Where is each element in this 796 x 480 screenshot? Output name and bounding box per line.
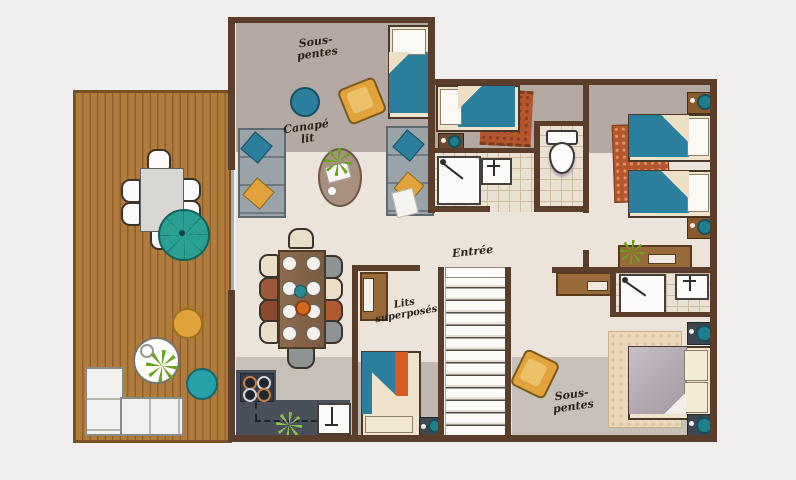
wall [534, 121, 583, 126]
basin-faucet [683, 280, 696, 282]
bowl-teal [294, 285, 307, 298]
lamp-icon [448, 135, 461, 148]
candle-icon [690, 223, 695, 228]
outdoor-chair [147, 149, 171, 170]
plate [306, 281, 321, 296]
basin-faucet [493, 160, 495, 176]
bed-pillow [684, 382, 708, 413]
candle-icon [441, 138, 446, 143]
sink-faucet [331, 407, 333, 425]
sink-faucet [325, 424, 338, 426]
bed-pillow [687, 174, 709, 212]
wall [505, 267, 511, 437]
wall [534, 121, 540, 212]
wall [228, 435, 717, 442]
wall [428, 17, 435, 213]
blanket-fold [458, 86, 482, 110]
wall [352, 265, 420, 271]
candle-icon [689, 329, 694, 334]
wall [710, 79, 717, 441]
outdoor-chair [181, 178, 201, 202]
wall [552, 267, 717, 273]
wall [610, 312, 712, 317]
burner-icon [243, 388, 257, 402]
candle-icon [421, 424, 426, 429]
outdoor-chair [121, 202, 141, 226]
lounge-sofa [120, 397, 184, 436]
wall [438, 267, 444, 437]
teal-pouf [186, 368, 218, 400]
washbasin [675, 274, 709, 300]
outdoor-chair [121, 179, 141, 203]
blanket-fold [389, 52, 411, 74]
dining-chair [288, 228, 314, 249]
dining-chair [259, 277, 279, 301]
wall [430, 79, 717, 85]
bed-pillow [684, 350, 708, 381]
wall [534, 206, 583, 212]
glass-door [231, 170, 234, 290]
wall [230, 17, 435, 23]
dining-chair [323, 277, 343, 301]
wall [352, 265, 358, 437]
plate [306, 256, 321, 271]
lounge-sofa [85, 367, 124, 436]
bunk-fold [372, 372, 416, 414]
staircase [445, 276, 506, 435]
teal-pouf [290, 87, 320, 117]
dining-chair [287, 347, 315, 369]
dining-chair [323, 255, 343, 279]
bunk-pillow [365, 416, 413, 433]
dining-chair [323, 320, 343, 344]
yellow-pouf [172, 308, 203, 339]
wall [228, 17, 235, 170]
dining-chair [259, 320, 279, 344]
stair-landing [445, 267, 506, 278]
blanket-fold [661, 115, 689, 143]
bed-pillow [687, 118, 709, 156]
duvet-fold [662, 394, 686, 414]
burner-icon [257, 388, 271, 402]
candle-icon [690, 98, 695, 103]
bowl-orange [295, 300, 311, 316]
floor-plan: Sous- pentes Canapé lit Entrée Lits supe… [0, 0, 796, 480]
kitchen-sink [317, 403, 351, 435]
candle-icon [689, 421, 694, 426]
table-cup [327, 186, 337, 196]
wall [430, 148, 537, 153]
plate [282, 256, 297, 271]
wall [610, 272, 616, 317]
console-tray [587, 281, 608, 291]
wall [228, 290, 235, 441]
washbasin [481, 158, 512, 185]
wall [583, 79, 589, 213]
basin-faucet [689, 276, 691, 291]
wall [430, 206, 490, 212]
dining-chair [259, 254, 279, 278]
plate [306, 326, 321, 341]
parasol-pole [179, 230, 185, 236]
desk-paper [648, 254, 676, 264]
plate [282, 326, 297, 341]
blanket-fold [661, 171, 689, 199]
plant [146, 350, 178, 382]
basin-faucet [487, 165, 500, 167]
plant [620, 240, 644, 264]
plant [324, 148, 352, 176]
